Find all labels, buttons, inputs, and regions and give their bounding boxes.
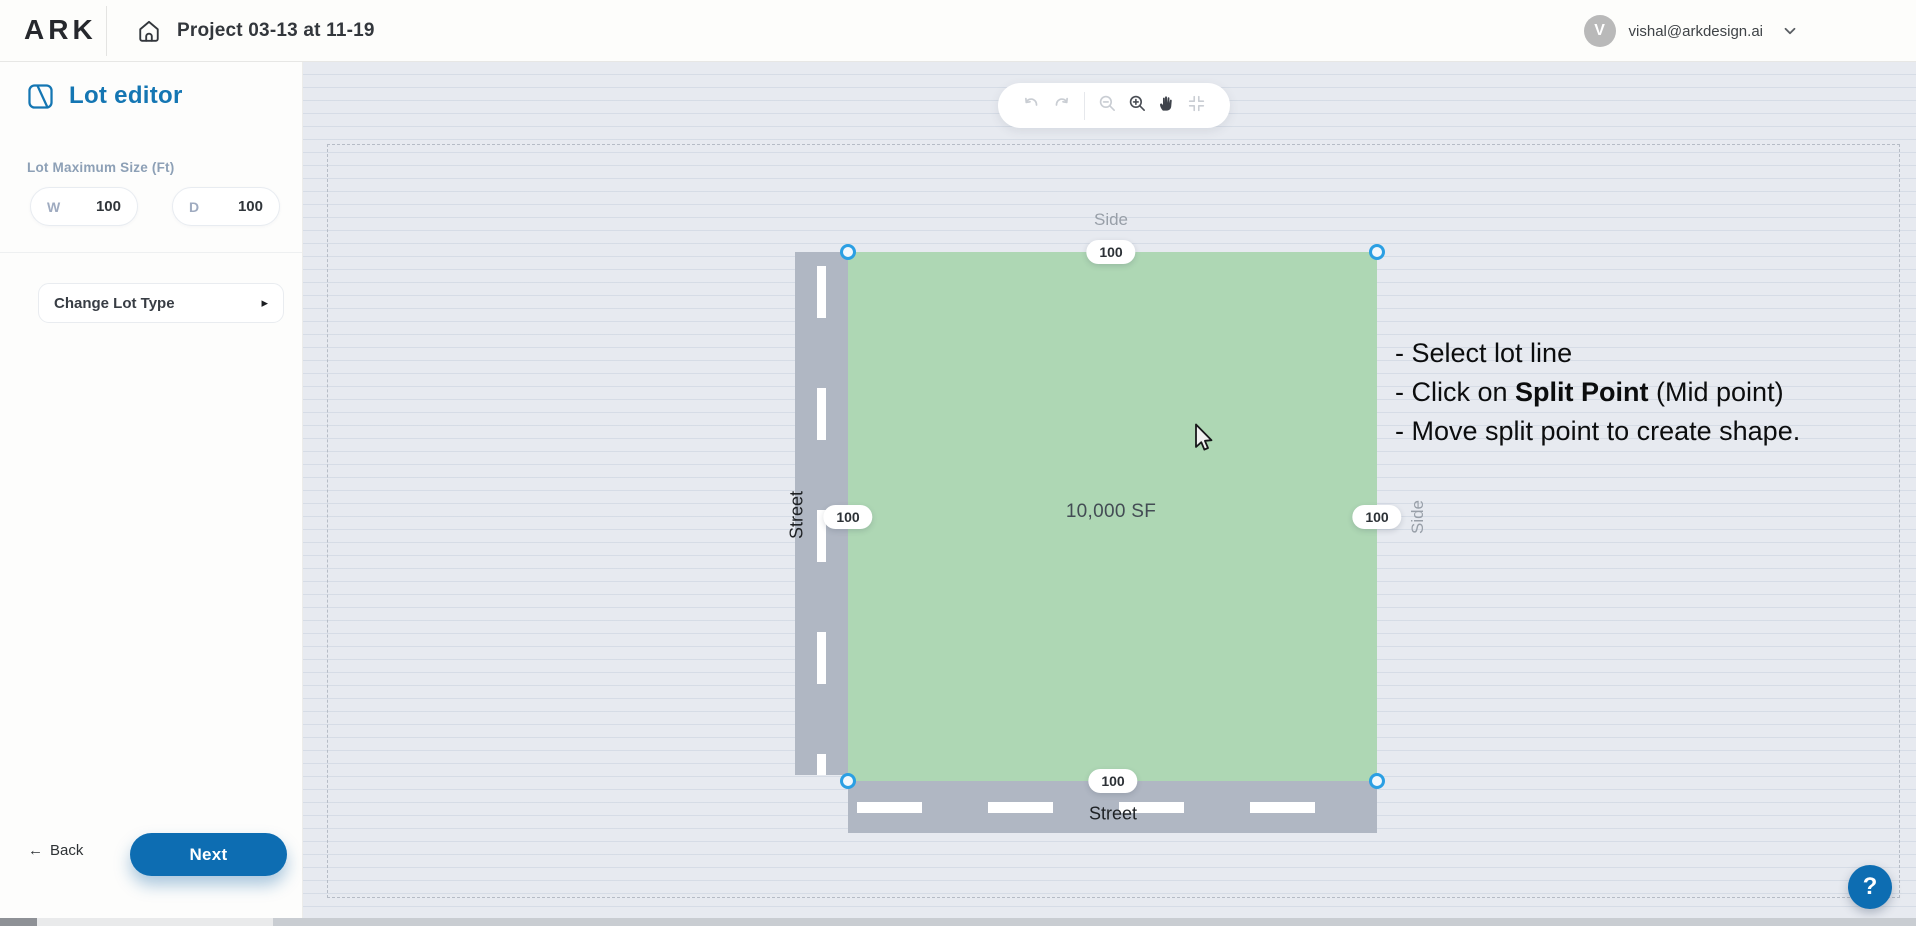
pan-button[interactable] <box>1152 83 1182 128</box>
mouse-cursor <box>1189 422 1215 461</box>
scrollbar-left-cap[interactable] <box>0 918 37 926</box>
chevron-down-icon[interactable] <box>1782 23 1798 39</box>
lot-corner-handle-bottom-left[interactable] <box>840 773 856 789</box>
change-lot-type-button[interactable]: Change Lot Type ▸ <box>38 283 284 323</box>
zoom-in-button[interactable] <box>1122 83 1152 128</box>
width-field-label: W <box>47 199 60 215</box>
scrollbar-thumb[interactable] <box>37 918 273 926</box>
instruction-text: - Select lot line - Click on Split Point… <box>1395 334 1800 451</box>
dimension-badge-bottom[interactable]: 100 <box>1088 769 1137 793</box>
panel-title-text: Lot editor <box>69 82 183 110</box>
panel-title: Lot editor <box>27 82 183 110</box>
redo-button[interactable] <box>1047 83 1077 128</box>
lot-corner-handle-top-right[interactable] <box>1369 244 1385 260</box>
avatar[interactable]: V <box>1584 15 1616 47</box>
lot-corner-handle-bottom-right[interactable] <box>1369 773 1385 789</box>
instruction-line-1: - Select lot line <box>1395 334 1800 373</box>
zoom-out-icon <box>1098 94 1117 118</box>
user-menu[interactable]: V vishal@arkdesign.ai <box>1584 0 1798 62</box>
width-field-value[interactable]: 100 <box>96 198 121 215</box>
undo-button[interactable] <box>1017 83 1047 128</box>
zoom-out-button[interactable] <box>1093 83 1123 128</box>
home-button[interactable] <box>135 17 163 45</box>
edge-label-top: Side <box>1094 210 1128 230</box>
next-button[interactable]: Next <box>130 833 287 876</box>
depth-field[interactable]: D 100 <box>172 187 280 226</box>
fit-view-icon <box>1187 94 1206 118</box>
edge-label-right: Side <box>1408 500 1428 534</box>
change-lot-type-label: Change Lot Type <box>54 295 175 312</box>
hand-icon <box>1157 94 1176 118</box>
project-title: Project 03-13 at 11-19 <box>177 20 375 42</box>
back-label: Back <box>50 842 83 859</box>
lot-editor-icon <box>27 83 54 110</box>
depth-field-label: D <box>189 199 199 215</box>
edge-label-bottom: Street <box>1089 804 1137 825</box>
lot-corner-handle-top-left[interactable] <box>840 244 856 260</box>
horizontal-scrollbar[interactable] <box>0 918 1916 926</box>
fit-view-button[interactable] <box>1181 83 1211 128</box>
instruction-line-2: - Click on Split Point (Mid point) <box>1395 373 1800 412</box>
header-divider <box>106 6 107 56</box>
app-window: ARK Project 03-13 at 11-19 V vishal@arkd… <box>0 0 1916 926</box>
zoom-in-icon <box>1128 94 1147 118</box>
depth-field-value[interactable]: 100 <box>238 198 263 215</box>
top-header: ARK Project 03-13 at 11-19 V vishal@arkd… <box>0 0 1916 62</box>
lot-canvas[interactable]: 10,000 SF Side Side Street Street 100 10… <box>303 62 1916 918</box>
ark-logo: ARK <box>24 14 97 46</box>
canvas-toolbar <box>998 83 1230 128</box>
dimension-badge-top[interactable]: 100 <box>1086 240 1135 264</box>
instruction-line-3: - Move split point to create shape. <box>1395 412 1800 451</box>
user-email: vishal@arkdesign.ai <box>1629 23 1763 40</box>
arrow-left-icon: ← <box>28 842 43 859</box>
undo-icon <box>1022 94 1041 118</box>
lot-editor-sidebar: Lot editor Lot Maximum Size (Ft) W 100 D… <box>0 62 303 918</box>
dimension-badge-left[interactable]: 100 <box>823 505 872 529</box>
help-button[interactable]: ? <box>1848 865 1892 909</box>
back-button[interactable]: ← Back <box>28 842 83 859</box>
lot-area-label: 10,000 SF <box>1066 501 1156 523</box>
lot-max-size-label: Lot Maximum Size (Ft) <box>27 160 174 175</box>
edge-label-left: Street <box>787 491 808 539</box>
redo-icon <box>1052 94 1071 118</box>
home-icon <box>135 32 163 49</box>
sidebar-divider <box>0 252 302 253</box>
width-field[interactable]: W 100 <box>30 187 138 226</box>
dimension-badge-right[interactable]: 100 <box>1352 505 1401 529</box>
toolbar-divider <box>1084 92 1085 120</box>
caret-right-icon: ▸ <box>261 295 268 311</box>
